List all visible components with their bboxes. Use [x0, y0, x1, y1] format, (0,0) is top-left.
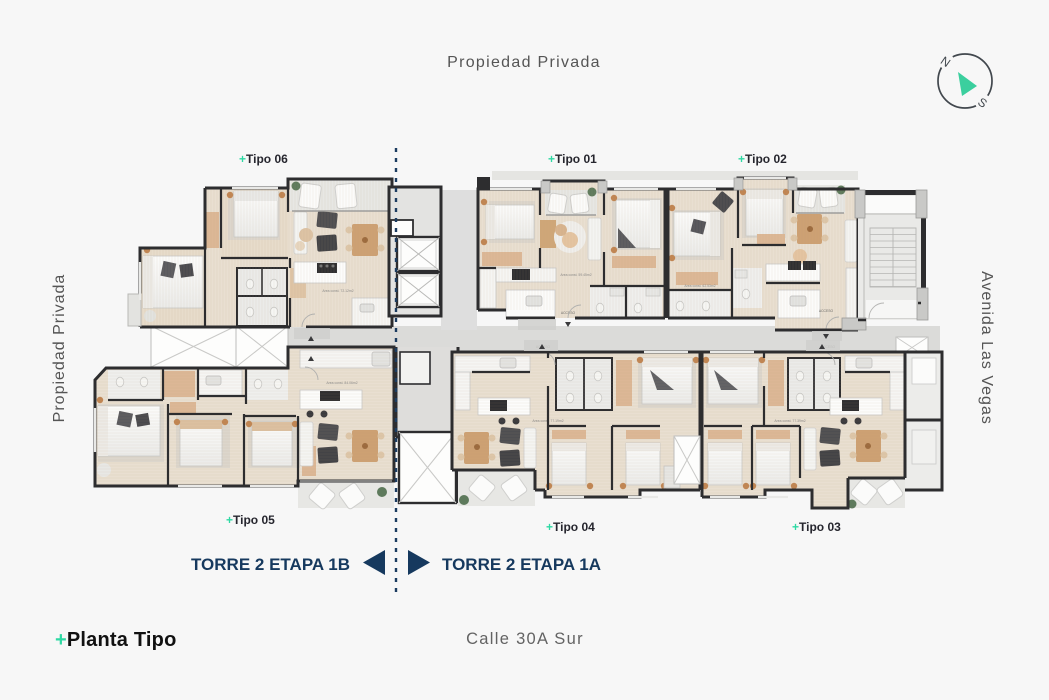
- svg-text:TORRE 2 ETAPA 1A: TORRE 2 ETAPA 1A: [442, 555, 601, 574]
- svg-text:Propiedad Privada: Propiedad Privada: [447, 54, 601, 71]
- svg-text:+Tipo 06: +Tipo 06: [239, 152, 288, 166]
- svg-text:Propiedad Privada: Propiedad Privada: [51, 274, 68, 423]
- svg-text:+Planta Tipo: +Planta Tipo: [55, 629, 177, 651]
- svg-text:Avenida Las Vegas: Avenida Las Vegas: [978, 271, 995, 425]
- svg-text:+Tipo 03: +Tipo 03: [792, 520, 841, 534]
- svg-text:Calle 30A Sur: Calle 30A Sur: [466, 630, 584, 648]
- svg-text:+Tipo 05: +Tipo 05: [226, 513, 275, 527]
- svg-text:+Tipo 04: +Tipo 04: [546, 520, 595, 534]
- svg-text:+Tipo 01: +Tipo 01: [548, 152, 597, 166]
- svg-text:TORRE 2 ETAPA 1B: TORRE 2 ETAPA 1B: [191, 555, 350, 574]
- svg-text:+Tipo 02: +Tipo 02: [738, 152, 787, 166]
